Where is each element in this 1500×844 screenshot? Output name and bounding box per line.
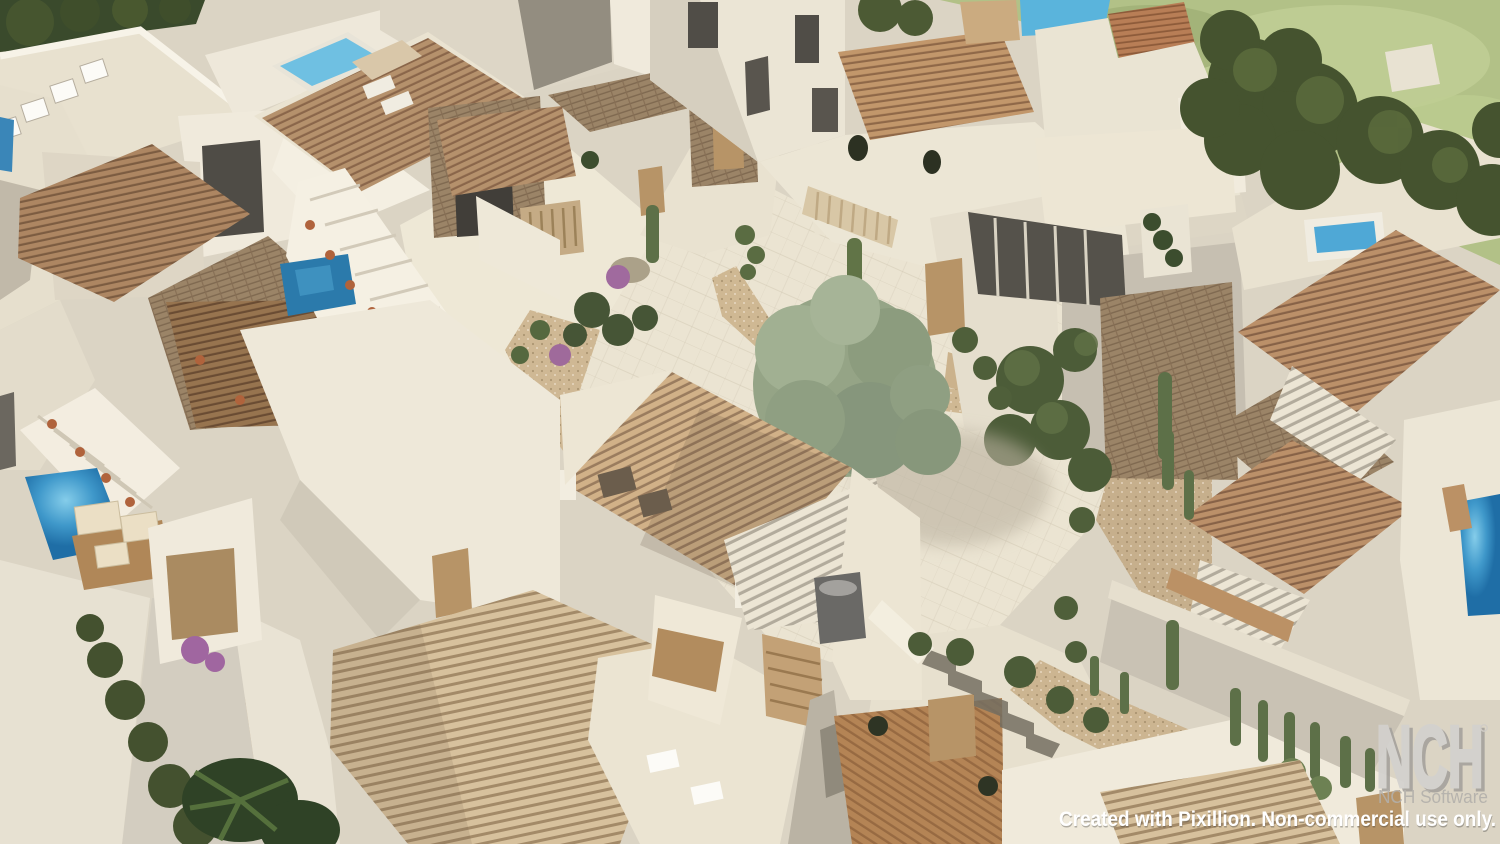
svg-text:Created with Pixillion. Non-co: Created with Pixillion. Non-commercial u…: [1059, 808, 1496, 831]
svg-text:NCH Software: NCH Software: [1378, 786, 1488, 807]
